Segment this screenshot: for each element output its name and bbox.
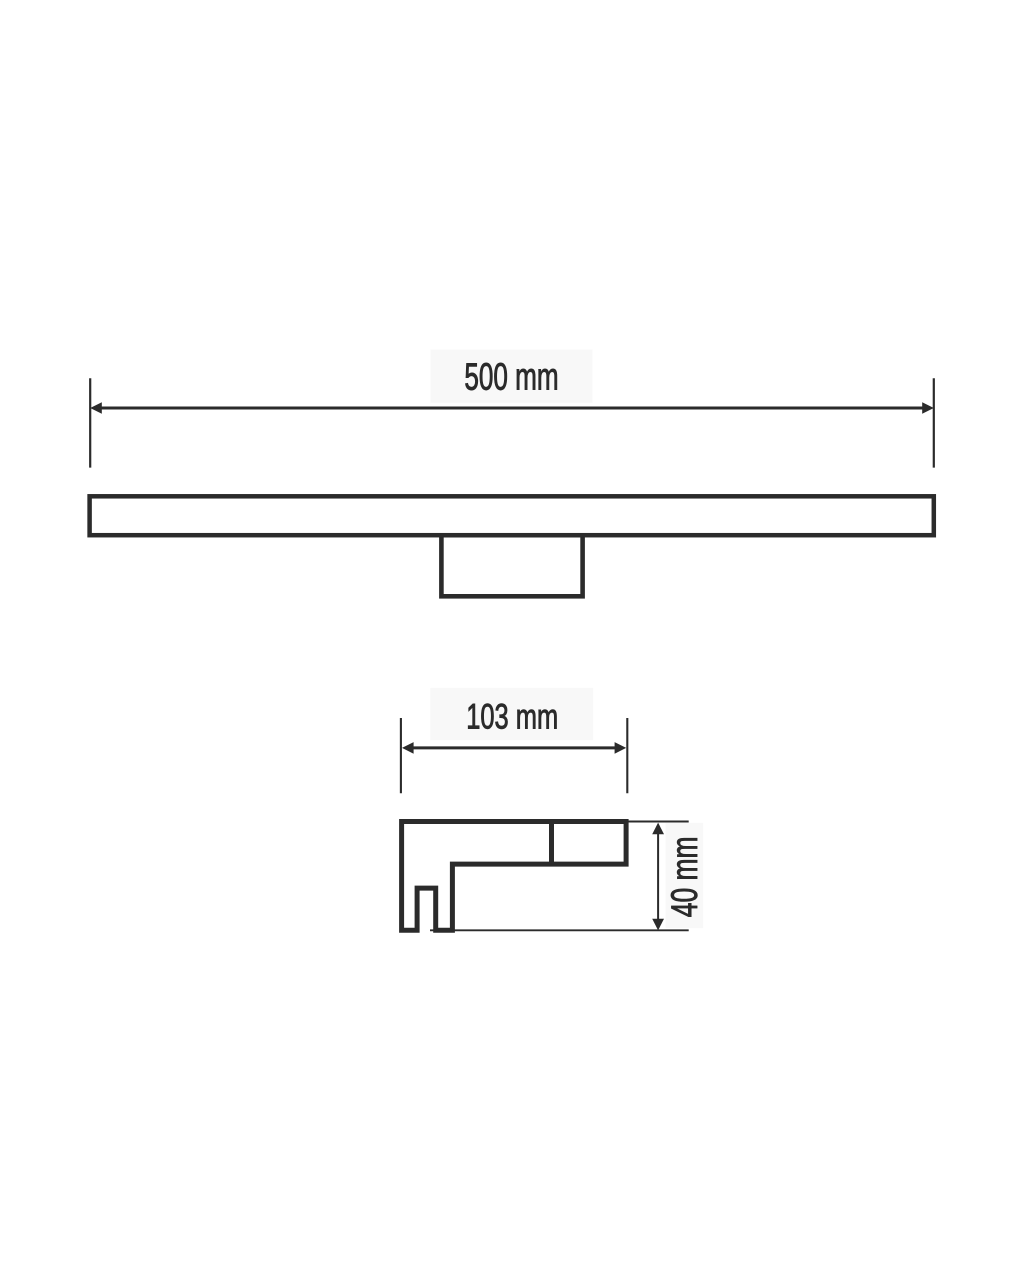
svg-text:40 mm: 40 mm: [664, 837, 705, 918]
svg-text:103 mm: 103 mm: [466, 696, 558, 736]
svg-text:500 mm: 500 mm: [464, 357, 558, 399]
